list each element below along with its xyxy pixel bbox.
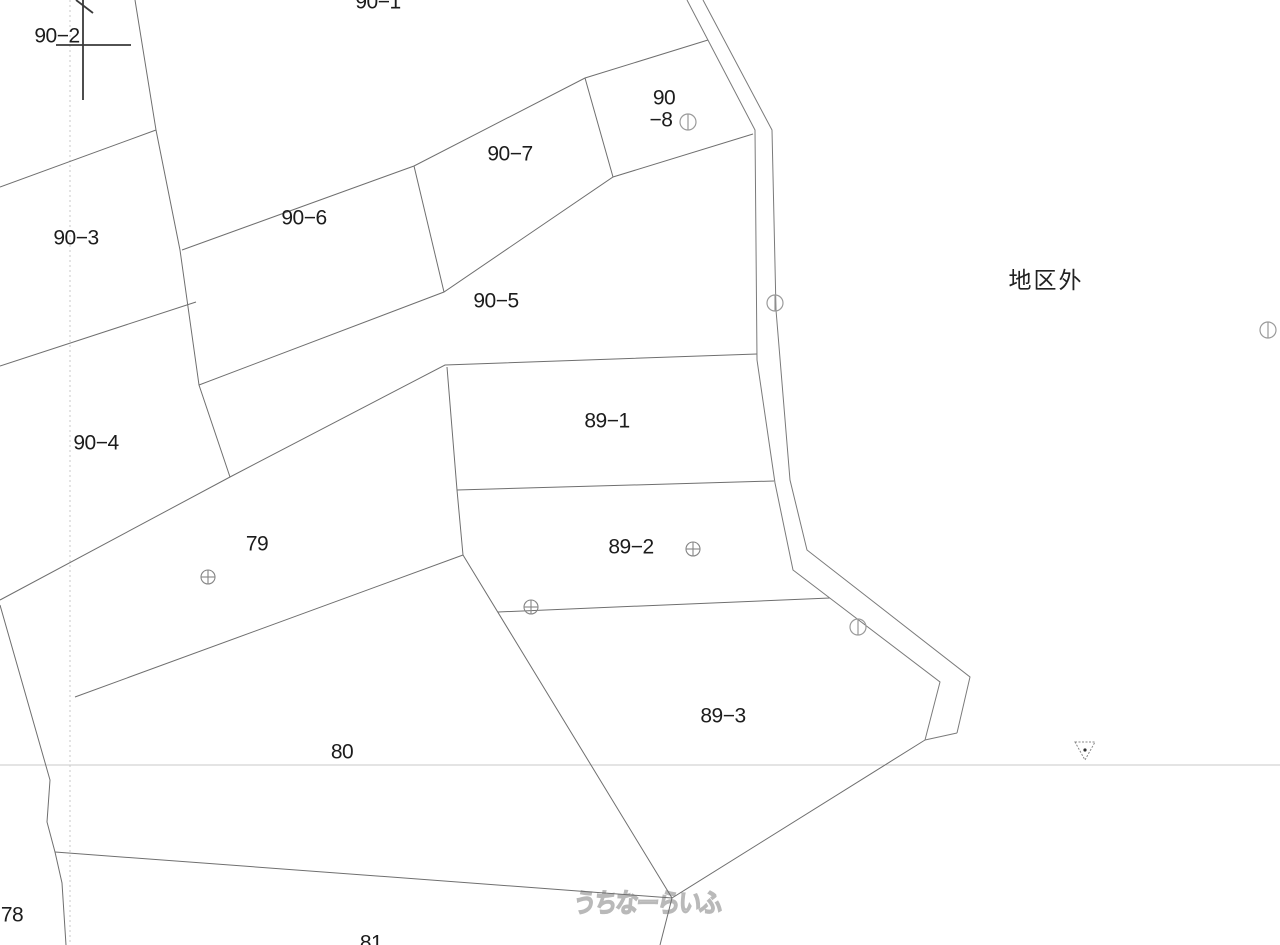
parcel-label-89-1: 89−1: [584, 410, 629, 433]
parcel-label-89-2: 89−2: [608, 536, 653, 559]
parcel-label-90-2: 90−2: [34, 25, 79, 48]
parcel-label-90-3: 90−3: [53, 227, 98, 250]
road-edge-inner: [687, 0, 940, 740]
b-strip-top: [182, 40, 708, 250]
parcel-label-90-4: 90−4: [73, 432, 119, 455]
road-edge-outer: [703, 0, 970, 733]
b-79-80: [75, 555, 463, 697]
parcel-label-90-5: 90−5: [473, 290, 518, 313]
b-89-3-road-end: [672, 740, 925, 898]
road-end-cap: [925, 733, 957, 740]
b-90-6-90-7: [414, 166, 444, 292]
map-viewport: うちなーらいふ90−190−290−390−490−590−690−790−88…: [0, 0, 1280, 945]
b-89-left-edge: [447, 367, 463, 555]
cadastral-map-canvas[interactable]: うちなーらいふ90−190−290−390−490−590−690−790−88…: [0, 0, 1280, 945]
survey-cross-icon: [76, 0, 93, 13]
parcel-label-90-8: 90: [653, 87, 675, 110]
b-strip-bottom: [199, 134, 753, 385]
benchmark-triangle-icon: [1083, 748, 1086, 751]
parcel-label-90-7: 90−7: [487, 143, 532, 166]
b-north-79-89-1: [0, 354, 757, 600]
site-watermark: うちなーらいふ: [572, 889, 724, 919]
parcel-label-78: 78: [1, 904, 23, 927]
b-west-spine: [135, 0, 230, 477]
b-80-81: [55, 852, 672, 898]
parcel-label-90-8: −8: [650, 109, 673, 132]
parcel-label-79: 79: [246, 533, 268, 556]
parcel-label-90-1: 90−1: [355, 0, 400, 14]
b-78-west: [0, 605, 66, 945]
b-90-7-90-8: [585, 78, 613, 177]
parcel-label-90-6: 90−6: [281, 207, 326, 230]
parcel-label-80: 80: [331, 741, 353, 764]
parcel-label-89-3: 89−3: [700, 705, 745, 728]
b-90-3-90-4: [0, 302, 196, 366]
b-89-1-89-2: [457, 481, 774, 490]
parcel-label-81: 81: [360, 932, 382, 945]
outside-district-label: 地区外: [1009, 267, 1084, 293]
b-89-2-89-3: [498, 598, 830, 612]
b-90-2-90-3: [0, 130, 156, 187]
